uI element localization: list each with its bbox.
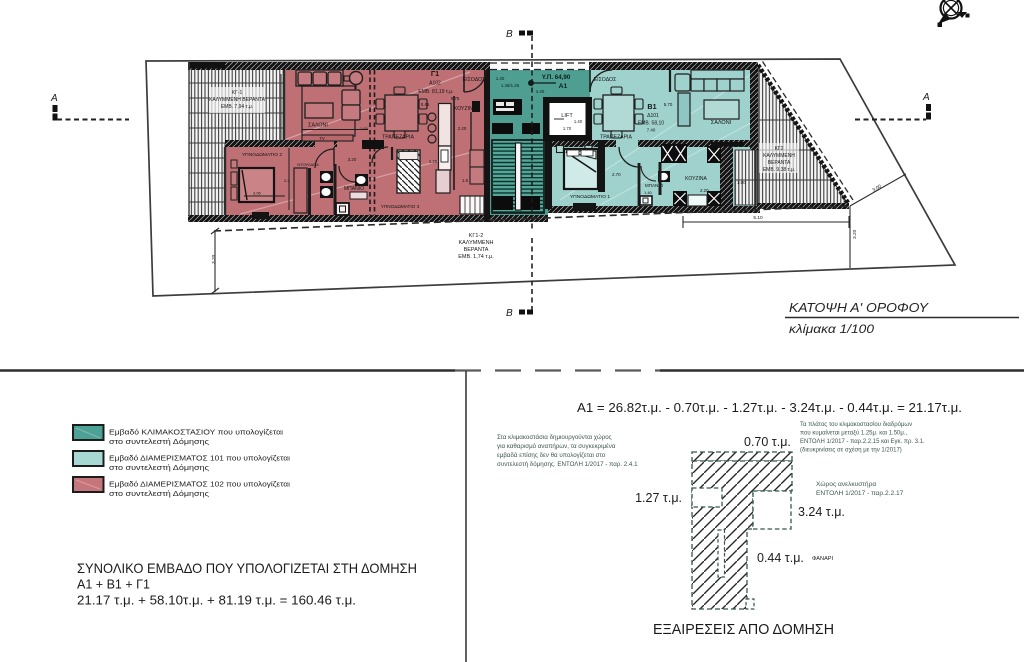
- svg-text:ΒΕΡΑΝΤΑ: ΒΕΡΑΝΤΑ: [464, 247, 489, 253]
- svg-text:Α1 = 26.82τ.μ. - 0.70τ.μ. - 1.: Α1 = 26.82τ.μ. - 0.70τ.μ. - 1.27τ.μ. - 3…: [577, 400, 962, 415]
- svg-text:2.20: 2.20: [458, 126, 467, 131]
- svg-text:ΕΜΒ. 7,94 τ.μ.: ΕΜΒ. 7,94 τ.μ.: [221, 104, 253, 110]
- svg-text:ΚΓ2: ΚΓ2: [775, 146, 784, 152]
- svg-text:LIFT: LIFT: [561, 113, 573, 119]
- svg-text:2.2: 2.2: [284, 178, 290, 183]
- svg-text:ΚΟΥΖΙΝΑ: ΚΟΥΖΙΝΑ: [685, 176, 707, 182]
- svg-text:ΕΜΒ. 1,74 τ.μ.: ΕΜΒ. 1,74 τ.μ.: [458, 254, 494, 260]
- svg-text:ΕΜΒ. 9,38 τ.μ.: ΕΜΒ. 9,38 τ.μ.: [763, 167, 795, 173]
- svg-text:1.27 τ.μ.: 1.27 τ.μ.: [635, 491, 682, 505]
- svg-text:4.40: 4.40: [536, 89, 545, 94]
- svg-text:Β1: Β1: [647, 102, 656, 111]
- svg-text:ΚΟΥΖΙΝΑ: ΚΟΥΖΙΝΑ: [454, 106, 477, 112]
- svg-text:B: B: [506, 308, 513, 319]
- svg-text:A: A: [922, 92, 930, 103]
- svg-text:ΣΥΝΟΛΙΚΟ ΕΜΒΑΔΟ ΠΟΥ ΥΠΟΛΟΓΙΖΕΤ: ΣΥΝΟΛΙΚΟ ΕΜΒΑΔΟ ΠΟΥ ΥΠΟΛΟΓΙΖΕΤΑΙ ΣΤΗ ΔΟΜ…: [77, 560, 417, 576]
- svg-text:ΥΠΝΟΔΩΜΑΤΙΟ 1: ΥΠΝΟΔΩΜΑΤΙΟ 1: [570, 194, 610, 200]
- svg-text:ΥΠΝΟΔΩΜΑΤΙΟ 2: ΥΠΝΟΔΩΜΑΤΙΟ 2: [242, 152, 282, 158]
- svg-text:ΤΡΑΠΕΖΑΡΙΑ: ΤΡΑΠΕΖΑΡΙΑ: [600, 135, 632, 141]
- svg-text:Α1 + Β1 + Γ1: Α1 + Β1 + Γ1: [77, 577, 150, 592]
- svg-text:Υ.Π. 64,90: Υ.Π. 64,90: [542, 74, 571, 81]
- svg-text:2.20: 2.20: [700, 188, 709, 193]
- svg-text:5.70: 5.70: [664, 102, 673, 107]
- svg-text:Γ1: Γ1: [431, 69, 439, 78]
- svg-text:3.20: 3.20: [348, 157, 357, 162]
- svg-text:21.17 τ.μ. + 58.10τ.μ. + 81.19: 21.17 τ.μ. + 58.10τ.μ. + 81.19 τ.μ. = 16…: [77, 593, 356, 608]
- svg-text:3.05: 3.05: [253, 191, 262, 196]
- svg-text:1.25: 1.25: [429, 159, 438, 164]
- svg-text:για καθαρισμό αναπήρων, τα συγ: για καθαρισμό αναπήρων, τα συγκεκριμένα: [497, 443, 616, 450]
- svg-text:συντελεστή δόμησης. ΕΝΤΟΛΗ 1/2: συντελεστή δόμησης. ΕΝΤΟΛΗ 1/2017 - παρ.…: [497, 461, 638, 468]
- svg-text:A: A: [50, 93, 58, 104]
- svg-text:1.40: 1.40: [496, 76, 505, 81]
- svg-text:2.70: 2.70: [612, 172, 621, 177]
- svg-text:1.6: 1.6: [462, 178, 469, 183]
- svg-text:0.70 τ.μ.: 0.70 τ.μ.: [744, 435, 791, 449]
- svg-text:Εμβαδό ΔΙΑΜΕΡΙΣΜΑΤΟΣ 101 που υ: Εμβαδό ΔΙΑΜΕΡΙΣΜΑΤΟΣ 101 που υπολογίζετα…: [109, 454, 290, 463]
- svg-text:στο συντελεστή Δόμησης: στο συντελεστή Δόμησης: [109, 437, 210, 446]
- svg-text:ΦΑΝΑΡΙ: ΦΑΝΑΡΙ: [812, 556, 834, 562]
- svg-text:3.20: 3.20: [211, 254, 217, 264]
- svg-text:Στα κλιμακοστάσια δημιουργούντ: Στα κλιμακοστάσια δημιουργούνται χώρος: [497, 434, 612, 441]
- svg-text:ΜΠΑΝΙΟ: ΜΠΑΝΙΟ: [344, 186, 364, 192]
- svg-text:ΕΞΑΙΡΕΣΕΙΣ ΑΠΟ ΔΟΜΗΣΗ: ΕΞΑΙΡΕΣΕΙΣ ΑΠΟ ΔΟΜΗΣΗ: [653, 622, 834, 638]
- svg-text:ΤΡΑΠΕΖΑΡΙΑ: ΤΡΑΠΕΖΑΡΙΑ: [382, 135, 414, 141]
- svg-text:1.45/1.25: 1.45/1.25: [501, 83, 520, 88]
- svg-text:ΕΙΣΟΔΟΣ: ΕΙΣΟΔΟΣ: [463, 77, 486, 83]
- svg-text:Χώρος ανελκυστήρα: Χώρος ανελκυστήρα: [816, 480, 876, 488]
- svg-text:1.40: 1.40: [574, 119, 583, 124]
- svg-text:στο συντελεστή Δόμησης: στο συντελεστή Δόμησης: [109, 463, 210, 472]
- svg-text:ΣΑΛΟΝΙ: ΣΑΛΟΝΙ: [711, 120, 732, 126]
- svg-text:5.10: 5.10: [753, 215, 763, 221]
- svg-text:ΚΑΤΟΨΗ Α' ΟΡΟΦΟΥ: ΚΑΤΟΨΗ Α' ΟΡΟΦΟΥ: [789, 301, 930, 315]
- svg-text:1.65: 1.65: [360, 126, 369, 131]
- svg-text:Εμβαδό ΔΙΑΜΕΡΙΣΜΑΤΟΣ 102 που υ: Εμβαδό ΔΙΑΜΕΡΙΣΜΑΤΟΣ 102 που υπολογίζετα…: [109, 480, 290, 489]
- svg-text:Τα πλάτος του κλιμακοστασίου δ: Τα πλάτος του κλιμακοστασίου διαδρόμων: [800, 421, 912, 428]
- svg-text:ΚΑΛΥΜΜΕΝΗ: ΚΑΛΥΜΜΕΝΗ: [458, 240, 493, 246]
- svg-text:ΕΜΒ. 81,19 τ.μ.: ΕΜΒ. 81,19 τ.μ.: [418, 89, 453, 95]
- svg-text:ΕΙΣΟΔΟΣ: ΕΙΣΟΔΟΣ: [594, 77, 617, 83]
- svg-text:3.24 τ.μ.: 3.24 τ.μ.: [798, 505, 845, 519]
- svg-text:στο συντελεστή Δόμησης: στο συντελεστή Δόμησης: [109, 489, 210, 498]
- svg-text:1.00: 1.00: [737, 180, 746, 185]
- svg-text:B: B: [506, 29, 513, 40]
- svg-text:ΚΓ1-2: ΚΓ1-2: [469, 233, 484, 239]
- svg-text:κλίμακα 1/100: κλίμακα 1/100: [789, 322, 874, 336]
- svg-text:ΣΑΛΟΝΙ: ΣΑΛΟΝΙ: [308, 123, 328, 129]
- svg-text:Α1: Α1: [559, 83, 568, 90]
- svg-text:3.20: 3.20: [852, 229, 858, 239]
- svg-text:ΥΠΝΟΔΩΜΑΤΙΟ 3: ΥΠΝΟΔΩΜΑΤΙΟ 3: [381, 204, 420, 209]
- svg-text:Εμβαδό ΚΛΙΜΑΚΟΣΤΑΣΙΟΥ που υπολ: Εμβαδό ΚΛΙΜΑΚΟΣΤΑΣΙΟΥ που υπολογίζεται: [109, 428, 283, 437]
- svg-text:Α102: Α102: [429, 81, 441, 87]
- svg-text:ΝΤΟΥΛΑΠΑ: ΝΤΟΥΛΑΠΑ: [297, 162, 319, 167]
- svg-text:Δ101: Δ101: [647, 113, 659, 119]
- svg-text:ΚΓ-1: ΚΓ-1: [232, 90, 243, 96]
- svg-text:ΕΝΤΟΛΗ 1/2017 - παρ.2.2.15 και: ΕΝΤΟΛΗ 1/2017 - παρ.2.2.15 και Εγκ. πρ. …: [800, 439, 925, 445]
- svg-text:0.44 τ.μ.: 0.44 τ.μ.: [757, 551, 804, 565]
- svg-text:ΚΑΛΥΜΜΕΝΗ: ΚΑΛΥΜΜΕΝΗ: [763, 153, 795, 159]
- svg-text:ΕΝΤΟΛΗ 1/2017 - παρ.2.2.17: ΕΝΤΟΛΗ 1/2017 - παρ.2.2.17: [816, 490, 904, 497]
- svg-text:ΚΑΛΥΜΜΕΝΗ ΒΕΡΑΝΤΑ: ΚΑΛΥΜΜΕΝΗ ΒΕΡΑΝΤΑ: [209, 97, 266, 103]
- svg-text:ΕΜΒ. 58,10: ΕΜΒ. 58,10: [638, 121, 664, 127]
- svg-text:ΒΕΡΑΝΤΑ: ΒΕΡΑΝΤΑ: [768, 160, 791, 166]
- svg-text:0.45: 0.45: [421, 102, 430, 107]
- svg-text:TV: TV: [319, 136, 325, 141]
- svg-text:(διευκρινίσεις σε σχέση με την: (διευκρινίσεις σε σχέση με την 1/2017): [800, 447, 902, 454]
- svg-text:5.75: 5.75: [451, 96, 460, 101]
- svg-text:1.70: 1.70: [563, 126, 572, 131]
- svg-text:που κυμαίνεται μεταξύ 1.25μ. κ: που κυμαίνεται μεταξύ 1.25μ. και 1.50μ.,: [800, 431, 907, 437]
- svg-text:εμβαδά επίσης δεν θα υπολογίζε: εμβαδά επίσης δεν θα υπολογίζεται στο: [497, 452, 606, 459]
- svg-text:7.40: 7.40: [647, 128, 656, 133]
- svg-text:1.40: 1.40: [644, 190, 653, 195]
